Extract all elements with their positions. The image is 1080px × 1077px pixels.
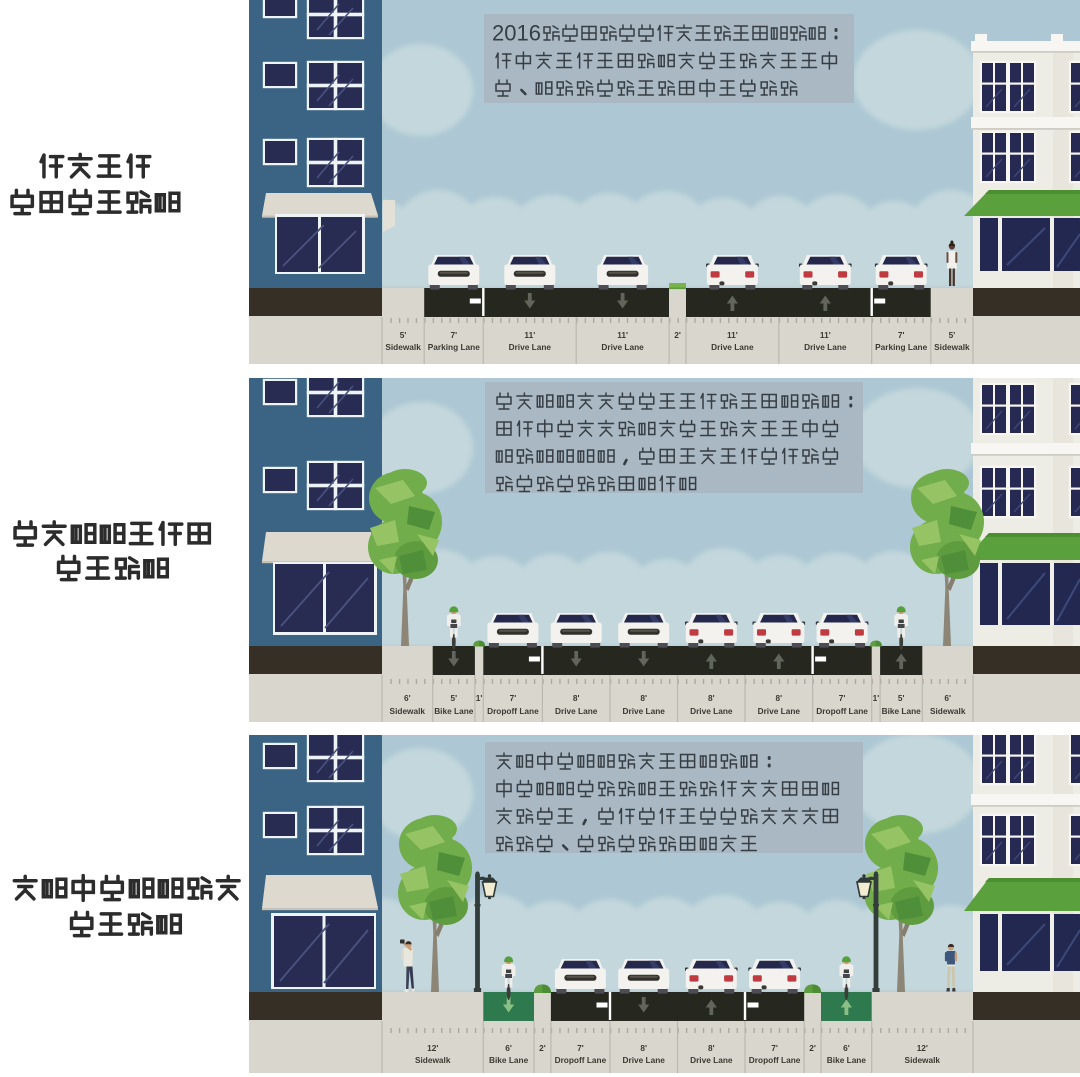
svg-text:8': 8' (776, 693, 783, 703)
svg-text:Dropoff Lane: Dropoff Lane (487, 706, 539, 716)
svg-text:8': 8' (640, 693, 647, 703)
svg-text:Bike Lane: Bike Lane (882, 706, 922, 716)
svg-text:Bike Lane: Bike Lane (434, 706, 474, 716)
svg-text:8': 8' (573, 693, 580, 703)
svg-text:Dropoff Lane: Dropoff Lane (749, 1055, 801, 1065)
svg-text:6': 6' (944, 693, 951, 703)
svg-text:5': 5' (400, 330, 407, 340)
svg-text:7': 7' (451, 330, 458, 340)
svg-text:2': 2' (674, 330, 681, 340)
svg-text:Parking Lane: Parking Lane (428, 342, 480, 352)
svg-text:5': 5' (898, 693, 905, 703)
svg-text:8': 8' (708, 1043, 715, 1053)
svg-text:12': 12' (427, 1043, 438, 1053)
svg-text:12': 12' (917, 1043, 928, 1053)
svg-text:Sidewalk: Sidewalk (385, 342, 421, 352)
svg-text:2': 2' (809, 1043, 816, 1053)
svg-text:Bike Lane: Bike Lane (489, 1055, 529, 1065)
svg-text:Drive Lane: Drive Lane (758, 706, 801, 716)
svg-text:6': 6' (404, 693, 411, 703)
svg-text:Drive Lane: Drive Lane (711, 342, 754, 352)
svg-text:7': 7' (839, 693, 846, 703)
svg-text:Dropoff Lane: Dropoff Lane (816, 706, 868, 716)
svg-text:Drive Lane: Drive Lane (690, 706, 733, 716)
svg-text:8': 8' (640, 1043, 647, 1053)
svg-text:Sidewalk: Sidewalk (415, 1055, 451, 1065)
svg-text:7': 7' (577, 1043, 584, 1053)
svg-text:11': 11' (820, 330, 831, 340)
svg-text:11': 11' (524, 330, 535, 340)
svg-text:Drive Lane: Drive Lane (509, 342, 552, 352)
svg-text:Sidewalk: Sidewalk (930, 706, 966, 716)
svg-text:Sidewalk: Sidewalk (390, 706, 426, 716)
svg-text:Dropoff Lane: Dropoff Lane (555, 1055, 607, 1065)
svg-text:Drive Lane: Drive Lane (804, 342, 847, 352)
svg-text:6': 6' (505, 1043, 512, 1053)
svg-text:6': 6' (843, 1043, 850, 1053)
svg-text:Drive Lane: Drive Lane (622, 706, 665, 716)
svg-text:Sidewalk: Sidewalk (934, 342, 970, 352)
svg-text:5': 5' (949, 330, 956, 340)
svg-text:7': 7' (898, 330, 905, 340)
svg-text:Sidewalk: Sidewalk (905, 1055, 941, 1065)
svg-text:11': 11' (727, 330, 738, 340)
svg-text:Parking Lane: Parking Lane (875, 342, 927, 352)
svg-text:Bike Lane: Bike Lane (827, 1055, 867, 1065)
svg-text:Drive Lane: Drive Lane (555, 706, 598, 716)
svg-text:Drive Lane: Drive Lane (601, 342, 644, 352)
svg-text:7': 7' (510, 693, 517, 703)
svg-text:Drive Lane: Drive Lane (690, 1055, 733, 1065)
svg-text:7': 7' (771, 1043, 778, 1053)
svg-text:Drive Lane: Drive Lane (622, 1055, 665, 1065)
svg-text:1': 1' (873, 693, 880, 703)
svg-text:5': 5' (451, 693, 458, 703)
svg-text:11': 11' (617, 330, 628, 340)
svg-text:2016: 2016 (492, 21, 541, 46)
svg-text:1': 1' (476, 693, 483, 703)
svg-text:2': 2' (539, 1043, 546, 1053)
svg-text:8': 8' (708, 693, 715, 703)
